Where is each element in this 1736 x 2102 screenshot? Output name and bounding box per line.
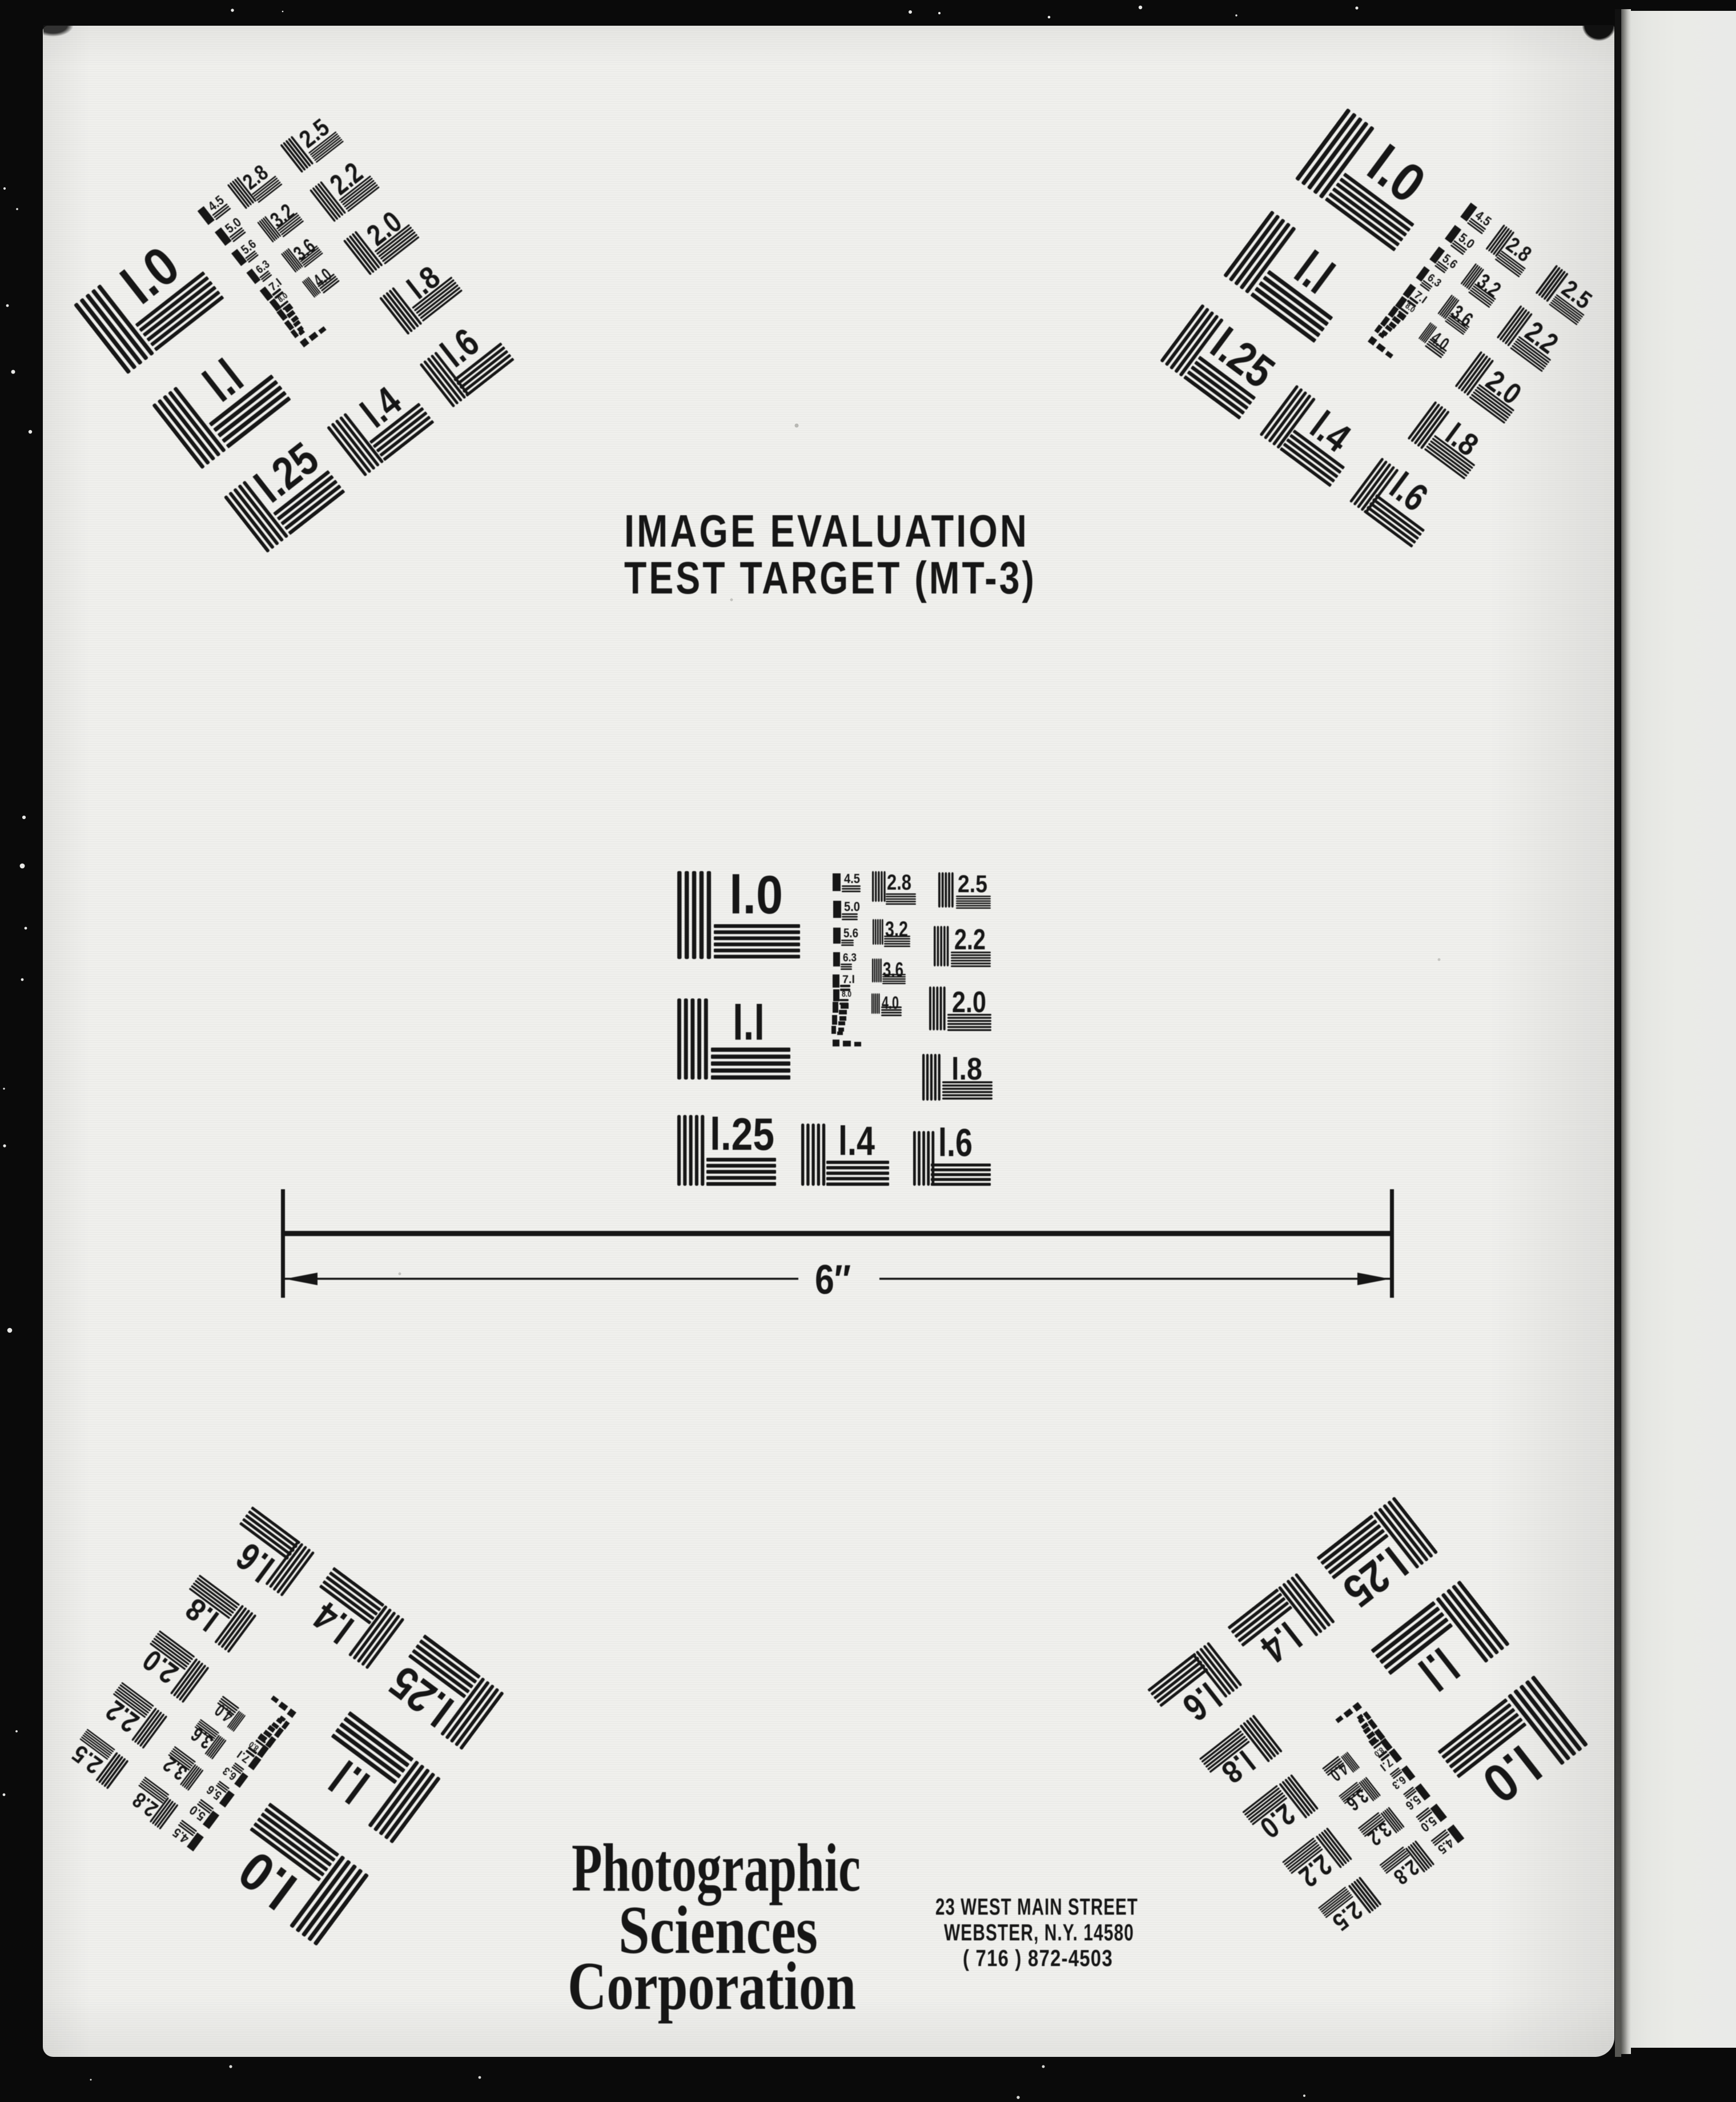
svg-text:Corporation: Corporation [568, 1948, 856, 2024]
svg-text:TEST TARGET (MT-3): TEST TARGET (MT-3) [624, 552, 1036, 603]
svg-text:IMAGE EVALUATION: IMAGE EVALUATION [624, 506, 1029, 556]
svg-text:( 716 ) 872-4503: ( 716 ) 872-4503 [963, 1945, 1113, 1971]
svg-text:WEBSTER, N.Y. 14580: WEBSTER, N.Y. 14580 [944, 1919, 1134, 1945]
svg-text:6″: 6″ [815, 1257, 851, 1303]
svg-text:23 WEST MAIN STREET: 23 WEST MAIN STREET [935, 1894, 1138, 1920]
